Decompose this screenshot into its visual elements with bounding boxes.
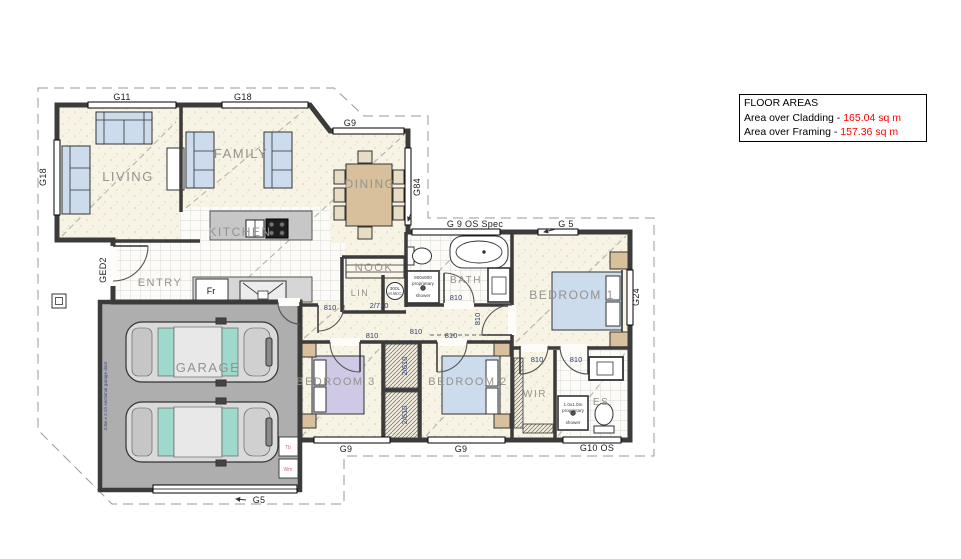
es-shower-label-2: proprietary	[562, 408, 585, 413]
cladding-label: Area over Cladding -	[744, 112, 843, 124]
room-label-bath: BATH	[450, 275, 482, 286]
dim-810-hall: 810	[324, 303, 337, 312]
window-label-g18-top: G18	[234, 92, 252, 102]
dim-810-bedroom1: 810	[473, 313, 482, 326]
car-top	[126, 318, 278, 386]
window-label-g5-bed1: G 5	[558, 219, 573, 229]
garage-door-note: 4.8w x 2.1h sectional garage door	[103, 361, 108, 430]
dim-810-bath: 810	[450, 293, 463, 302]
window-g18-left	[54, 140, 60, 215]
bath-shower-label-3: shower	[416, 293, 431, 298]
room-label-family: FAMILY	[214, 146, 268, 161]
window-label-g24: G24	[631, 288, 641, 306]
dim-810-bedroom3: 810	[366, 331, 379, 340]
wir-rail	[523, 424, 553, 433]
cladding-value: 165.04 sq m	[843, 112, 901, 124]
room-label-kitchen: KITCHEN	[208, 225, 271, 239]
bedside-table	[302, 343, 316, 357]
framing-value: 157.36 sq m	[840, 126, 898, 138]
es-shower-label-1: 1.0x1.0m	[564, 402, 583, 407]
dim-wardrobe-2-610-bottom: 2/610	[400, 406, 409, 425]
room-label-living: LIVING	[102, 169, 154, 184]
car-bottom	[126, 398, 278, 466]
dim-810-opening: 810	[410, 327, 423, 336]
vanity-ensuite	[589, 357, 623, 380]
room-label-es: ES	[593, 397, 609, 408]
window-label-g10-os: G10 OS	[580, 443, 614, 453]
room-label-garage: GARAGE	[176, 360, 241, 375]
window-g9-family	[333, 128, 404, 134]
window-label-g9-os-spec: G 9 OS Spec	[447, 219, 504, 229]
sofa-family-right	[264, 132, 292, 188]
window-label-g18-left: G18	[38, 168, 48, 186]
floor-areas-row-framing: Area over Framing - 157.36 sq m	[744, 125, 922, 140]
floor-plan-page: LIVING FAMILY DINING KITCHEN ENTRY NOOK …	[0, 0, 961, 559]
garage-door-panel	[153, 485, 297, 493]
window-g9-os-spec	[412, 229, 500, 235]
sofa-living-top	[96, 112, 152, 144]
window-g18-top	[222, 102, 308, 108]
dim-810-ensuite: 810	[570, 355, 583, 364]
washing-machine-label: Wm	[284, 467, 293, 473]
dim-wardrobe-2-610-top: 2/610	[400, 357, 409, 376]
room-label-dining: DINING	[345, 177, 396, 191]
bath-shower-label-1: 900x900	[414, 275, 432, 280]
window-label-g84: G84	[412, 178, 422, 196]
bath-shower-label-2: proprietary	[412, 281, 435, 286]
room-label-lin: LIN	[351, 288, 370, 298]
dim-linen-2-710: 2/710	[370, 301, 389, 310]
dim-810-wir: 810	[531, 355, 544, 364]
laundry-tub-label: Tb	[285, 445, 291, 451]
toilet-bath	[406, 247, 432, 265]
window-label-g9-bed2: G9	[455, 444, 468, 454]
bedside-table	[610, 252, 628, 269]
room-label-nook: NOOK	[355, 262, 393, 274]
porch-post	[52, 294, 66, 308]
room-label-bedroom2: BEDROOM 2	[428, 376, 508, 388]
room-label-bedroom1: BEDROOM 1	[529, 288, 615, 302]
window-label-g9-bed3: G9	[340, 444, 353, 454]
hwc-label-2: H.W.C	[388, 291, 402, 296]
sofa-family-left	[186, 132, 214, 188]
leader-arrow	[236, 499, 246, 500]
window-g9-bed2	[428, 437, 505, 443]
bedside-table	[494, 342, 510, 356]
bedside-table	[494, 414, 510, 428]
window-g9-bed3	[314, 437, 390, 443]
bathtub	[450, 236, 508, 268]
dim-810-bedroom2: 810	[445, 331, 458, 340]
bedside-table	[302, 414, 316, 428]
room-label-bedroom3: BEDROOM 3	[296, 376, 376, 388]
room-label-entry: ENTRY	[138, 277, 183, 289]
window-g84-dining	[405, 148, 411, 225]
vanity-bath	[488, 268, 510, 302]
window-label-g5-garage: G5	[253, 495, 266, 505]
floor-areas-box: FLOOR AREAS Area over Cladding - 165.04 …	[739, 94, 927, 142]
wir-rail	[514, 358, 523, 428]
floor-areas-heading: FLOOR AREAS	[744, 96, 922, 111]
es-shower-label-3: shower	[566, 420, 581, 425]
framing-label: Area over Framing -	[744, 126, 840, 138]
floor-areas-row-cladding: Area over Cladding - 165.04 sq m	[744, 111, 922, 126]
floor-plan-drawing: LIVING FAMILY DINING KITCHEN ENTRY NOOK …	[0, 0, 961, 559]
room-label-wir: WIR	[523, 389, 547, 400]
window-label-g9-family: G9	[344, 118, 357, 128]
sofa-living-left	[62, 146, 90, 214]
door-label-ged2: GED2	[98, 257, 108, 283]
window-g11	[88, 102, 176, 108]
window-label-g11: G11	[113, 92, 130, 102]
fridge-label: Fr	[207, 286, 216, 296]
